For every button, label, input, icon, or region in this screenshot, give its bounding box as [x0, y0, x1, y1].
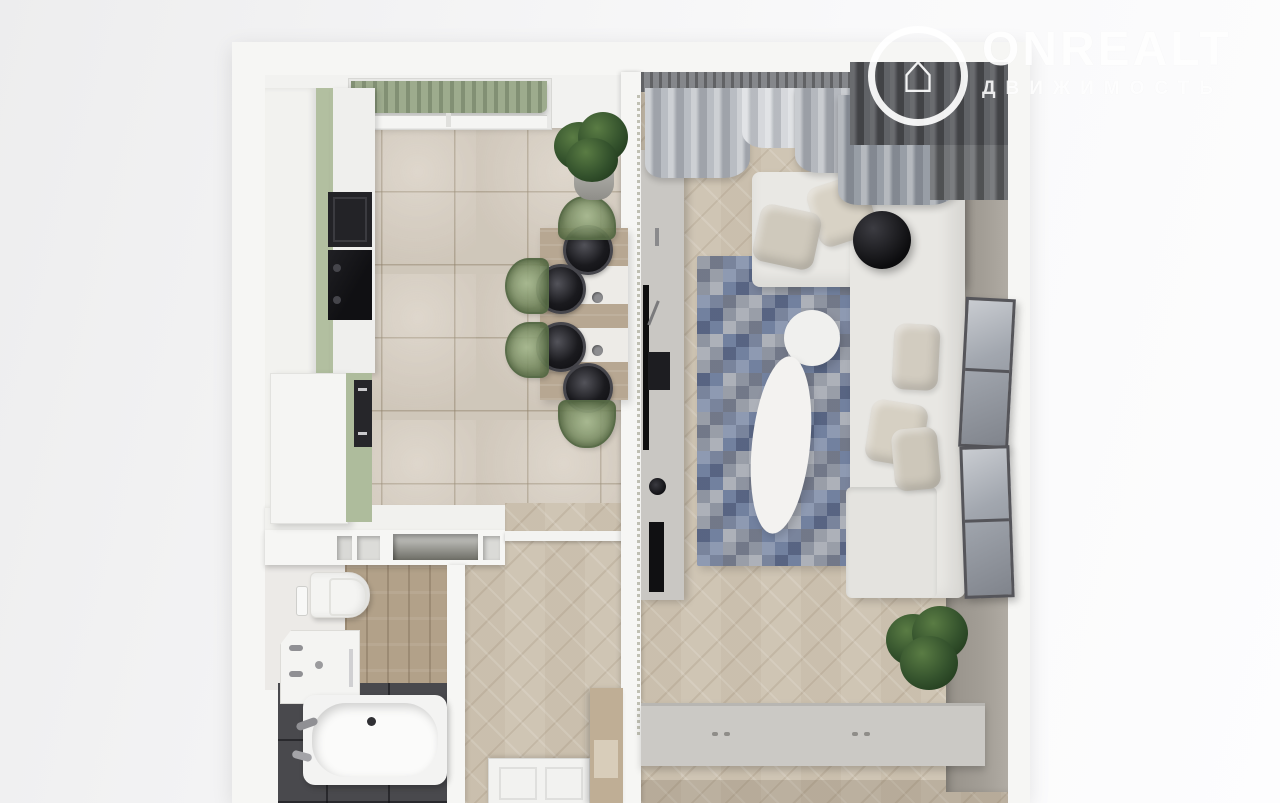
tack-strip	[637, 95, 640, 735]
toilet	[310, 572, 370, 618]
wall-niche	[483, 536, 500, 560]
house-icon: ⌂	[868, 26, 968, 126]
faucet	[289, 671, 303, 677]
entry-door-top-view	[488, 758, 590, 803]
watermark-subtitle: ДВИЖИМОСТЬ	[982, 78, 1231, 100]
sofa-ottoman	[846, 487, 937, 598]
watermark-brand: ONREALT	[982, 26, 1231, 74]
tv-media-box	[648, 352, 670, 390]
built-in-appliance-niche	[354, 380, 372, 447]
niche-partition-wall	[265, 530, 505, 565]
roman-shade-green	[351, 81, 547, 113]
wardrobe-handle	[712, 732, 718, 736]
half-wall-strip	[505, 531, 638, 541]
wardrobe-handle	[724, 732, 730, 736]
hallway-cabinet	[590, 688, 623, 803]
kitchen-window-recess	[348, 78, 552, 130]
console-decor	[655, 228, 659, 246]
sink-drain	[315, 661, 323, 669]
glass	[592, 292, 603, 303]
dining-chair	[505, 258, 549, 314]
hallway-cabinet-step	[594, 740, 618, 778]
dining-chair	[505, 322, 549, 378]
wardrobe-top-view	[641, 703, 985, 766]
tall-unit-fridge	[270, 373, 348, 524]
cooktop-knob	[333, 264, 341, 272]
vanity-handle	[349, 649, 353, 687]
curtain-light	[645, 88, 750, 178]
wall-niche-large	[393, 534, 478, 560]
bathroom-vanity	[280, 630, 360, 704]
bathtub-basin	[312, 703, 438, 777]
watermark: ⌂ ONREALT ДВИЖИМОСТЬ	[868, 26, 1231, 126]
wall-niche	[357, 536, 380, 560]
leaning-mirror-panel	[958, 297, 1016, 449]
floor-lamp-shade	[853, 211, 911, 269]
built-in-oven	[328, 192, 372, 247]
bathtub	[303, 695, 447, 785]
wardrobe-handle	[852, 732, 858, 736]
door-panel	[499, 767, 537, 800]
floor-plan-render: ⌂ ONREALT ДВИЖИМОСТЬ	[0, 0, 1280, 803]
glass	[592, 345, 603, 356]
speaker	[649, 478, 666, 495]
sofa-pillow	[751, 202, 824, 272]
soundbar	[649, 522, 664, 592]
bathroom-hallway-wall	[447, 565, 465, 803]
potted-plant-kitchen	[552, 112, 628, 204]
plant-foliage	[566, 138, 618, 182]
wardrobe-handle	[864, 732, 870, 736]
sofa-pillow	[891, 323, 940, 391]
appliance-handle	[358, 432, 367, 435]
door-panel	[545, 767, 583, 800]
cooktop	[328, 250, 372, 320]
leaning-mirror-panel	[959, 445, 1014, 599]
window-frame-divider	[446, 113, 451, 127]
wall-niche	[337, 536, 352, 560]
bathtub-drain	[367, 717, 376, 726]
mirror-divider	[965, 518, 1009, 523]
house-glyph: ⌂	[901, 45, 935, 101]
curtain-dark-right	[930, 145, 1008, 200]
sofa-pillow	[890, 426, 941, 492]
potted-plant-living	[886, 606, 968, 690]
toilet-seat-line	[329, 578, 367, 616]
watermark-text: ONREALT ДВИЖИМОСТЬ	[982, 26, 1231, 100]
faucet	[289, 645, 303, 651]
appliance-handle	[358, 388, 367, 391]
cooktop-knob	[333, 296, 341, 304]
flush-plate	[296, 586, 308, 616]
mirror-divider	[965, 368, 1009, 373]
plant-foliage	[900, 636, 958, 690]
